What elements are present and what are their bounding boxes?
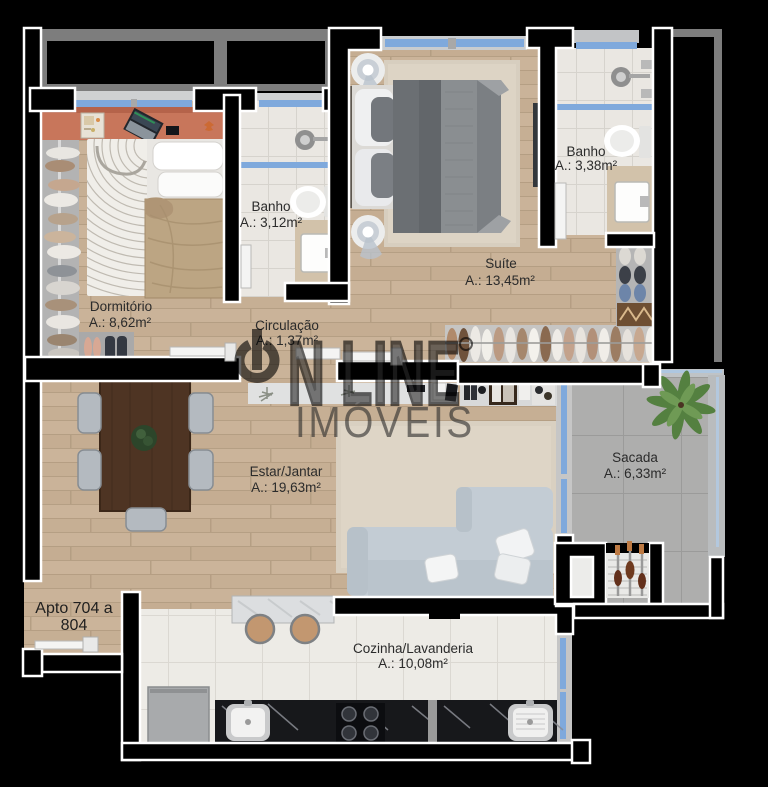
svg-text:Dormitório: Dormitório <box>90 299 152 314</box>
svg-text:A.: 3,38m²: A.: 3,38m² <box>555 158 618 173</box>
svg-text:A.: 8,62m²: A.: 8,62m² <box>89 315 152 330</box>
svg-text:A.: 13,45m²: A.: 13,45m² <box>465 273 535 288</box>
svg-text:Cozinha/Lavanderia: Cozinha/Lavanderia <box>353 641 474 656</box>
svg-text:A.: 3,12m²: A.: 3,12m² <box>240 215 303 230</box>
svg-text:Estar/Jantar: Estar/Jantar <box>250 464 323 479</box>
svg-text:Sacada: Sacada <box>612 450 658 465</box>
svg-text:Banho: Banho <box>251 199 290 214</box>
svg-text:A.: 6,33m²: A.: 6,33m² <box>604 466 667 481</box>
svg-text:A.: 10,08m²: A.: 10,08m² <box>378 656 448 671</box>
svg-text:Banho: Banho <box>566 144 605 159</box>
svg-text:Apto 704 a: Apto 704 a <box>35 600 113 617</box>
svg-text:804: 804 <box>61 617 88 634</box>
svg-text:IMÓVEIS: IMÓVEIS <box>295 397 475 447</box>
svg-text:A.: 19,63m²: A.: 19,63m² <box>251 480 321 495</box>
svg-text:Suíte: Suíte <box>485 256 517 271</box>
